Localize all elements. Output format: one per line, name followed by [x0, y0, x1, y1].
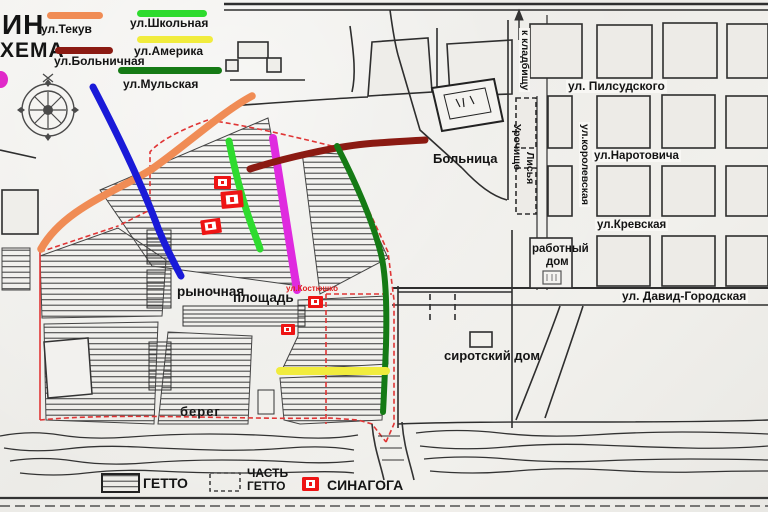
- synagogue-icon: [220, 190, 243, 209]
- map-title-fragment: ИН: [2, 10, 44, 39]
- ghetto-hatch-swatch: [102, 474, 139, 492]
- map-canvas: ИН ХЕМА ул.Текув ул.Школьная ул.Больничн…: [0, 0, 768, 512]
- tekuv-swatch: [47, 12, 103, 19]
- legend-label-mulskaya: ул.Мульская: [123, 78, 198, 91]
- legend-label-ghetto: ГЕТТО: [143, 476, 188, 491]
- area-label-bereg: берег: [180, 405, 221, 419]
- street-label-korolevskaya: ул.королевская: [579, 122, 590, 207]
- street-label-pilsudskogo: ул. Пилсудского: [566, 80, 667, 93]
- area-label-urochishche: Урочище: [511, 124, 522, 170]
- legend-label-amerika: ул.Америка: [134, 45, 203, 58]
- street-label-kostyushko: ул.Костюшко: [286, 285, 338, 293]
- area-label-ploshchad: площадь: [233, 291, 294, 305]
- street-label-david-gorodskaya: ул. Давид-Городская: [620, 290, 748, 303]
- street-label-krevskaya: ул.Кревская: [595, 219, 668, 231]
- river-shore: [0, 422, 768, 506]
- building-label-rabotny-dom-1: работный: [532, 243, 589, 255]
- bolnichnaya-swatch: [55, 47, 113, 54]
- building-label-bolnitsa: Больница: [433, 152, 497, 166]
- building-label-sirotsky-dom: сиротский дом: [444, 349, 540, 363]
- synagogue-legend-icon: [302, 477, 319, 491]
- map-drawing: [0, 0, 768, 512]
- legend-label-tekuv: ул.Текув: [41, 23, 92, 36]
- legend-label-part-ghetto-1: ЧАСТЬ: [247, 467, 288, 480]
- area-label-lisya: Лисья: [524, 152, 535, 184]
- mulskaya-swatch: [118, 67, 222, 74]
- legend-label-synagogue: СИНАГОГА: [327, 478, 403, 493]
- street-label-cemetery: к кладбищу: [519, 28, 530, 92]
- legend-label-part-ghetto-2: ГЕТТО: [247, 480, 286, 493]
- amerika-swatch: [137, 36, 213, 43]
- legend-label-bolnichnaya: ул.Больничная: [54, 55, 145, 68]
- legend-label-shkolnaya: ул.Школьная: [130, 17, 208, 30]
- building-label-rabotny-dom-2: дом: [546, 256, 569, 268]
- synagogue-building-sketch: [432, 79, 503, 131]
- part-ghetto-dashed-swatch: [210, 473, 240, 491]
- compass-rose-icon: [17, 74, 79, 141]
- street-label-narotovicha: ул.Наротовича: [592, 150, 681, 162]
- synagogue-icon: [214, 176, 231, 189]
- workhouse-icon: [543, 271, 561, 284]
- synagogue-icon: [308, 296, 323, 308]
- synagogue-icon: [281, 324, 295, 335]
- synagogue-icon: [200, 218, 222, 236]
